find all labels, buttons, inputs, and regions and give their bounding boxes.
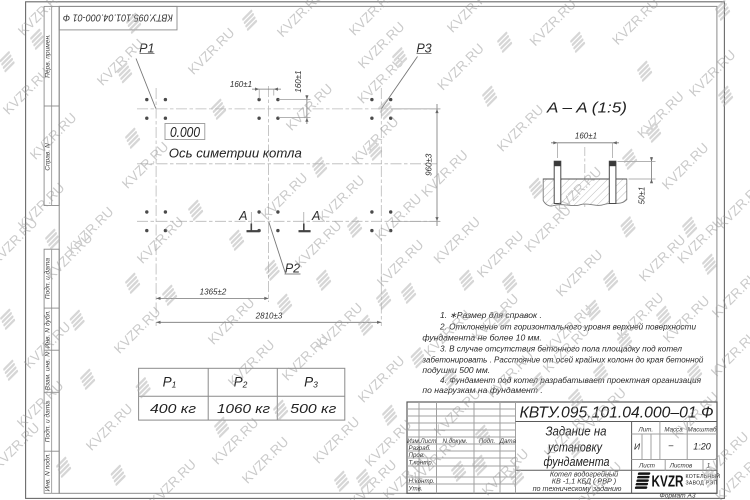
svg-text:A – A (1:5): A – A (1:5) [546,101,627,117]
svg-text:160±1: 160±1 [575,132,597,141]
svg-text:Лист: Лист [638,462,655,469]
svg-text:КВТУ.095.101.04.000-01 Ф: КВТУ.095.101.04.000-01 Ф [63,11,173,22]
svg-text:И: И [634,442,641,452]
svg-text:1060 кг: 1060 кг [217,402,270,416]
svg-text:2810±3: 2810±3 [255,312,283,321]
svg-text:Инв. N подл.: Инв. N подл. [44,453,52,492]
svg-text:–: – [668,440,674,450]
svg-text:1365±2: 1365±2 [200,288,227,297]
svg-text:Листов: Листов [669,462,693,469]
svg-text:160±1: 160±1 [294,70,303,92]
svg-text:500 кг: 500 кг [290,402,336,416]
svg-text:400 кг: 400 кг [150,402,196,416]
svg-text:KVZR: KVZR [652,473,684,490]
svg-text:по нагрузкам на фундамент .: по нагрузкам на фундамент . [422,385,542,395]
svg-text:A: A [238,209,247,223]
svg-text:Дата: Дата [499,438,517,445]
svg-text:Формат А3: Формат А3 [659,492,695,499]
svg-text:50±1: 50±1 [638,187,647,205]
svg-text:подушки 500 мм.: подушки 500 мм. [422,365,490,375]
svg-text:160±1: 160±1 [230,80,252,89]
svg-text:4. Фундамент под котел раз: 4. Фундамент под котел разрабатывает про… [440,375,701,385]
svg-text:Изм.Лист: Изм.Лист [407,438,436,445]
svg-text:0.000: 0.000 [170,125,200,141]
svg-text:960±3: 960±3 [425,153,434,176]
svg-text:Утв.: Утв. [408,485,423,492]
svg-text:Ось симетрии котла: Ось симетрии котла [169,146,302,160]
svg-text:Лит.: Лит. [638,427,654,434]
svg-text:1:20: 1:20 [693,442,711,452]
